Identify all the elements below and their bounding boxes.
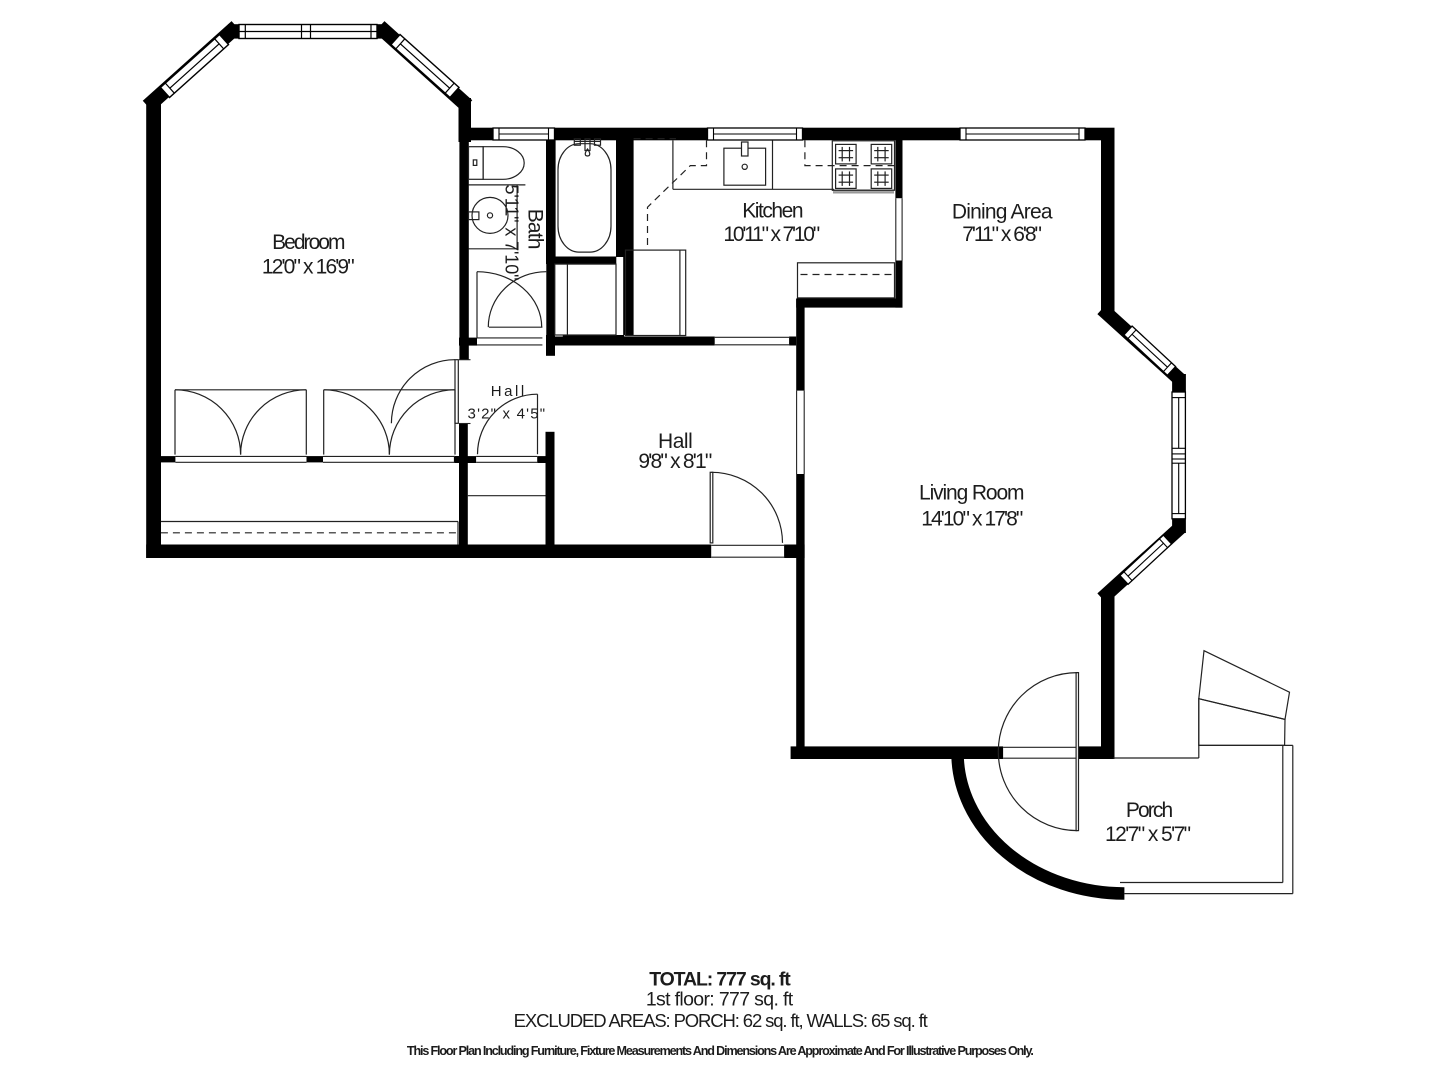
svg-text:EXCLUDED AREAS: PORCH: 62 sq.: EXCLUDED AREAS: PORCH: 62 sq. ft, WALLS:… [514,1010,928,1031]
svg-text:12'7" x 5'7": 12'7" x 5'7" [1105,823,1191,846]
svg-text:TOTAL: 777 sq. ft: TOTAL: 777 sq. ft [649,968,791,990]
svg-text:9'8" x 8'1": 9'8" x 8'1" [638,450,712,473]
svg-text:14'10" x 17'8": 14'10" x 17'8" [921,508,1023,531]
svg-text:5'11" x 7'10": 5'11" x 7'10" [502,185,522,281]
svg-text:10'11" x 7'10": 10'11" x 7'10" [723,223,820,246]
svg-text:Porch: Porch [1126,799,1173,822]
svg-text:12'0" x 16'9": 12'0" x 16'9" [262,256,355,279]
svg-text:3'2" x 4'5": 3'2" x 4'5" [468,405,546,422]
svg-text:Kitchen: Kitchen [742,199,803,222]
svg-text:Living Room: Living Room [919,482,1025,505]
svg-text:Bedroom: Bedroom [272,231,345,254]
svg-text:Dining Area: Dining Area [952,200,1053,223]
svg-text:1st floor: 777 sq. ft: 1st floor: 777 sq. ft [646,989,794,1011]
svg-text:Bath: Bath [523,209,546,250]
svg-text:This Floor Plan Including Furn: This Floor Plan Including Furniture, Fix… [407,1044,1034,1058]
svg-text:7'11" x 6'8": 7'11" x 6'8" [962,223,1042,246]
